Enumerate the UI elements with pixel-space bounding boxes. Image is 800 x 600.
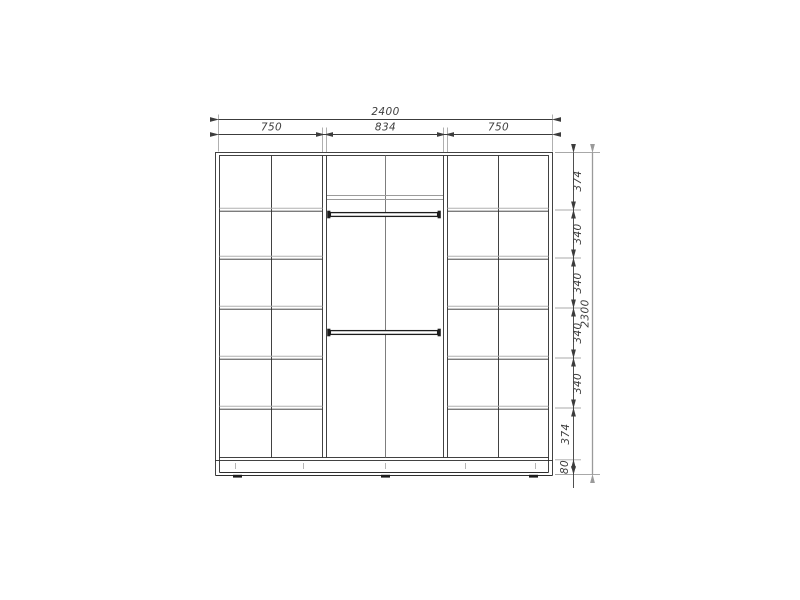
foot-right [529, 475, 538, 478]
blueprint-canvas: 2400 750 834 750 374 340 340 340 340 374… [0, 0, 800, 600]
dim-middle-section-label: 834 [375, 122, 396, 134]
feet-adjuster-ticks [236, 463, 536, 469]
hanging-rod-upper [327, 211, 441, 219]
dim-row-height-label: 340 [572, 223, 584, 244]
top-dimensions: 2400 750 834 750 [219, 106, 553, 152]
dim-overall-height-label: 2300 [580, 299, 592, 327]
left-section-shelves [220, 208, 323, 409]
dim-row-height-label: 340 [572, 373, 584, 394]
foot-center [381, 475, 390, 478]
dim-row-height-label: 374 [560, 423, 572, 444]
dim-left-section-label: 750 [261, 122, 282, 134]
divider-middle-right [444, 156, 448, 458]
middle-top-shelf [327, 196, 443, 200]
dim-right-section-label: 750 [488, 122, 509, 134]
wardrobe-elevation-drawing: 2400 750 834 750 374 340 340 340 340 374… [0, 0, 800, 600]
dim-row-height-label: 374 [572, 170, 584, 191]
hanging-rod-lower [327, 329, 441, 337]
middle-section-fittings [327, 196, 443, 337]
right-dimensions: 374 340 340 340 340 374 80 2300 [555, 153, 600, 489]
dim-overall-width-label: 2400 [371, 106, 399, 118]
divider-left-middle [323, 156, 327, 458]
right-section-shelves [448, 208, 549, 409]
dim-row-height-label: 340 [572, 272, 584, 293]
dim-base-height-label: 80 [559, 460, 571, 474]
foot-left [233, 475, 242, 478]
